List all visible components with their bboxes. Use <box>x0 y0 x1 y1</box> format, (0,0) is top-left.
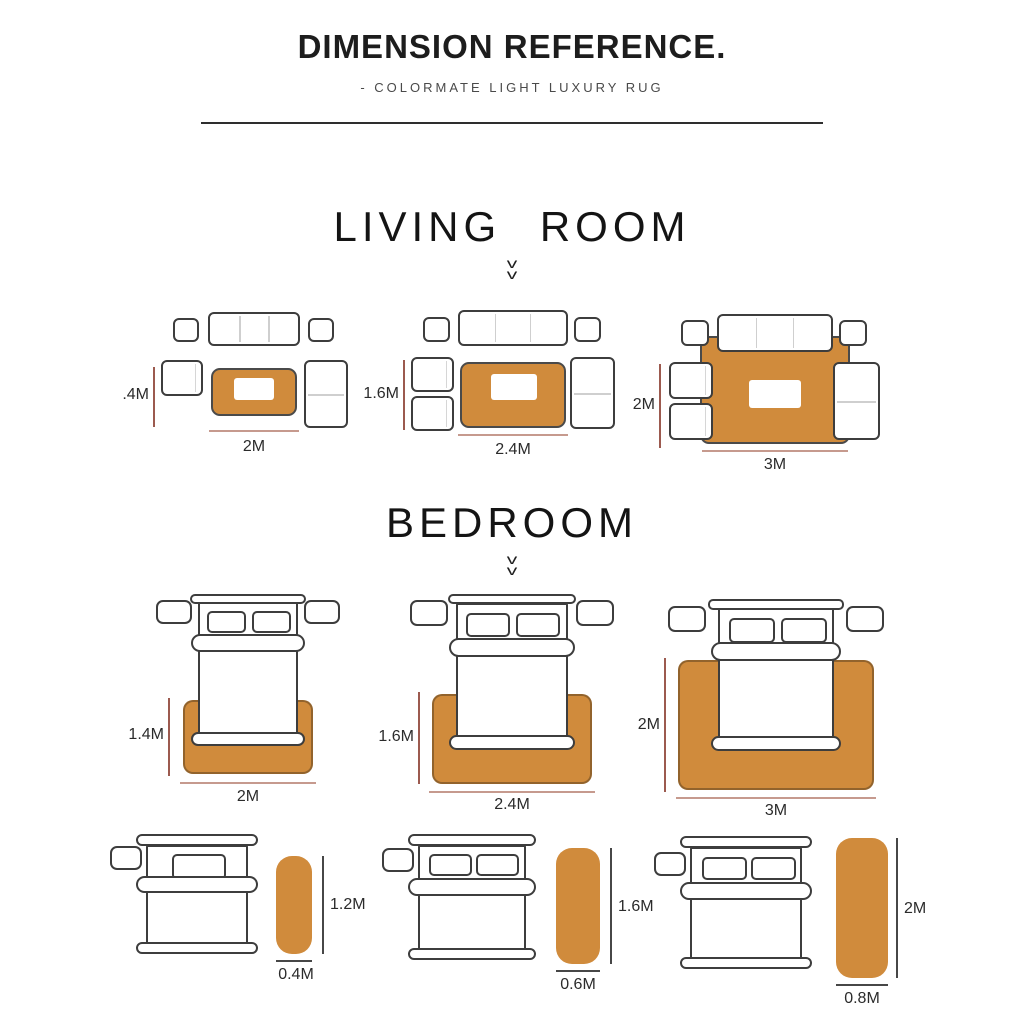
armchair-icon <box>669 403 713 440</box>
height-dimension-line <box>403 360 405 430</box>
bed-icon <box>198 602 298 740</box>
pillow-icon <box>252 611 291 633</box>
runner-rug-shape <box>836 838 888 978</box>
width-dimension-line <box>276 960 312 962</box>
chevron-glyph: v <box>0 269 1024 280</box>
header-divider <box>201 122 823 124</box>
sofa-icon <box>458 310 568 346</box>
rug-shape <box>460 362 566 428</box>
runner-rug-shape <box>276 856 312 954</box>
loveseat-icon <box>833 362 880 440</box>
bedroom-layout-2: 1.6M 2.4M <box>392 594 632 826</box>
blanket-bar-icon <box>136 876 258 893</box>
bedroom-heading: BEDROOM <box>0 500 1024 546</box>
living-room-layout-2: 1.6M 2.4M <box>387 310 637 480</box>
loveseat-icon <box>570 357 615 429</box>
width-dimension-label: 2.4M <box>458 441 568 459</box>
width-dimension-label: 2M <box>209 438 299 456</box>
nightstand-icon <box>110 846 142 870</box>
dimension-reference-page: DIMENSION REFERENCE. - COLORMATE LIGHT L… <box>0 0 1024 1014</box>
pillow-icon <box>476 854 519 876</box>
bed-foot-bar-icon <box>711 736 841 751</box>
pillow-icon <box>702 857 747 880</box>
armchair-icon <box>411 396 454 431</box>
living-room-layout-1: .4M 2M <box>127 310 377 480</box>
armchair-icon <box>161 360 203 396</box>
runner-rug-shape <box>556 848 600 964</box>
width-dimension-label: 0.4M <box>258 966 334 984</box>
living-room-layouts-row: .4M 2M 1.6M 2.4M <box>0 310 1024 480</box>
height-dimension-line <box>610 848 612 964</box>
height-dimension-line <box>896 838 898 978</box>
coffee-table-icon <box>234 378 274 400</box>
armchair-icon <box>411 357 454 392</box>
width-dimension-label: 0.8M <box>820 990 904 1008</box>
width-dimension-line <box>209 430 299 432</box>
width-dimension-line <box>429 791 595 793</box>
blanket-bar-icon <box>711 642 841 661</box>
loveseat-icon <box>304 360 348 428</box>
width-dimension-line <box>702 450 848 452</box>
pillow-icon <box>207 611 246 633</box>
living-room-layout-3: 2M 3M <box>647 310 897 480</box>
nightstand-icon <box>382 848 414 872</box>
height-dimension-line <box>664 658 666 792</box>
bedroom-layouts-row: 1.4M 2M 1.6M 2.4M <box>0 594 1024 826</box>
height-dimension-label: 1.6M <box>370 728 414 746</box>
height-dimension-line <box>153 367 155 427</box>
pillow-icon <box>751 857 796 880</box>
height-dimension-label: 2M <box>630 716 660 734</box>
bedside-runner-row: 1.2M 0.4M 1.6M 0.6M <box>0 828 1024 1014</box>
pillow-icon <box>729 618 775 643</box>
rug-shape <box>211 368 297 416</box>
pillow-icon <box>429 854 472 876</box>
width-dimension-label: 0.6M <box>540 976 616 994</box>
bedside-runner-layout-1: 1.2M 0.4M <box>100 828 372 1014</box>
bed-icon <box>718 608 834 744</box>
width-dimension-label: 2M <box>180 788 316 806</box>
nightstand-icon <box>304 600 340 624</box>
pillow-icon <box>516 613 560 637</box>
side-table-icon <box>839 320 867 346</box>
side-table-icon <box>681 320 709 346</box>
page-title: DIMENSION REFERENCE. <box>0 28 1024 66</box>
width-dimension-line <box>836 984 888 986</box>
bed-foot-bar-icon <box>136 942 258 954</box>
coffee-table-icon <box>491 374 537 400</box>
chevron-down-icon: v v <box>0 258 1024 280</box>
height-dimension-line <box>659 364 661 448</box>
height-dimension-label: 2M <box>904 900 940 918</box>
side-table-icon <box>574 317 601 342</box>
side-table-icon <box>308 318 334 342</box>
height-dimension-line <box>168 698 170 776</box>
armchair-icon <box>669 362 713 399</box>
width-dimension-line <box>556 970 600 972</box>
blanket-bar-icon <box>680 882 812 900</box>
width-dimension-line <box>676 797 876 799</box>
side-table-icon <box>173 318 199 342</box>
bed-foot-bar-icon <box>408 948 536 960</box>
bed-foot-bar-icon <box>191 732 305 746</box>
nightstand-icon <box>156 600 192 624</box>
width-dimension-label: 2.4M <box>429 796 595 814</box>
bed-icon <box>146 845 248 951</box>
width-dimension-line <box>458 434 568 436</box>
bed-foot-bar-icon <box>449 735 575 750</box>
width-dimension-label: 3M <box>676 802 876 820</box>
coffee-table-icon <box>749 380 801 408</box>
blanket-bar-icon <box>408 878 536 896</box>
bedroom-layout-1: 1.4M 2M <box>128 594 368 826</box>
nightstand-icon <box>846 606 884 632</box>
bed-icon <box>456 603 568 743</box>
blanket-bar-icon <box>191 634 305 652</box>
width-dimension-line <box>180 782 316 784</box>
height-dimension-label: 2M <box>623 396 655 414</box>
sofa-icon <box>208 312 300 346</box>
height-dimension-line <box>418 692 420 784</box>
bedside-runner-layout-3: 2M 0.8M <box>652 828 924 1014</box>
height-dimension-label: 1.4M <box>120 726 164 744</box>
sofa-icon <box>717 314 833 352</box>
pillow-icon <box>466 613 510 637</box>
bed-icon <box>690 847 802 965</box>
chevron-down-icon: v v <box>0 554 1024 576</box>
height-dimension-line <box>322 856 324 954</box>
nightstand-icon <box>410 600 448 626</box>
height-dimension-label: 1.6M <box>618 898 662 916</box>
bed-foot-bar-icon <box>680 957 812 969</box>
nightstand-icon <box>576 600 614 626</box>
side-table-icon <box>423 317 450 342</box>
nightstand-icon <box>654 852 686 876</box>
height-dimension-label: .4M <box>113 386 149 404</box>
living-room-heading: LIVING ROOM <box>0 204 1024 250</box>
pillow-icon <box>781 618 827 643</box>
bedside-runner-layout-2: 1.6M 0.6M <box>376 828 648 1014</box>
rug-shape <box>700 336 850 444</box>
bed-icon <box>418 845 526 957</box>
bedroom-layout-3: 2M 3M <box>656 594 896 826</box>
width-dimension-label: 3M <box>702 456 848 474</box>
page-subtitle: - COLORMATE LIGHT LUXURY RUG <box>0 80 1024 96</box>
height-dimension-label: 1.2M <box>330 896 374 914</box>
blanket-bar-icon <box>449 638 575 657</box>
chevron-glyph: v <box>0 565 1024 576</box>
height-dimension-label: 1.6M <box>361 385 399 403</box>
nightstand-icon <box>668 606 706 632</box>
